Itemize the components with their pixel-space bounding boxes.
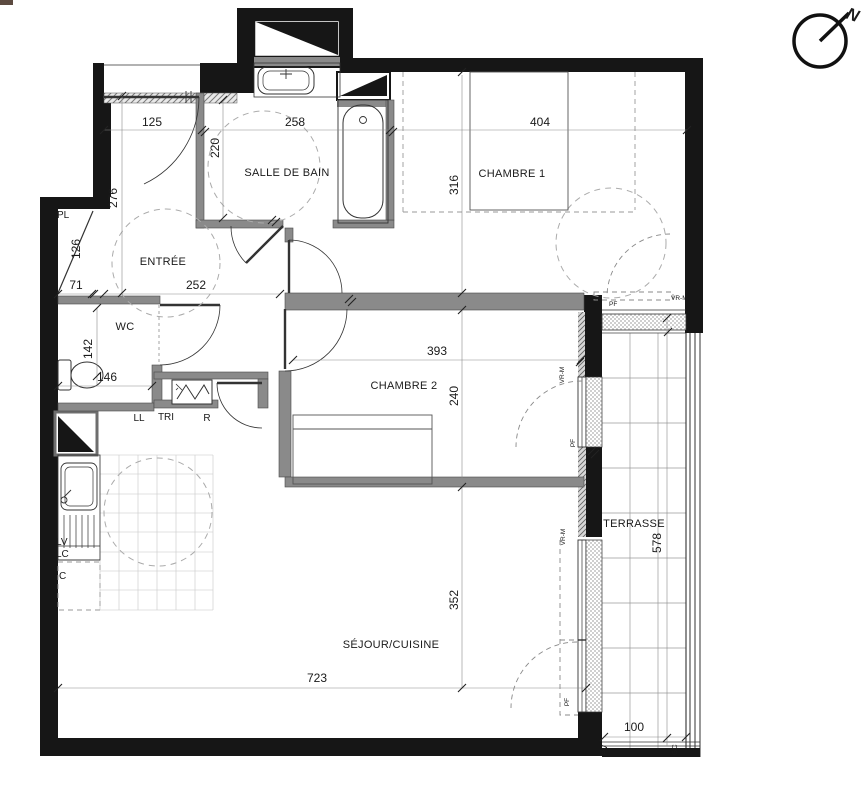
bathtub	[338, 100, 388, 223]
washbasin	[254, 63, 340, 97]
dim-bathroom-width: 258	[285, 115, 305, 129]
living-window	[578, 540, 602, 712]
wc-door	[160, 305, 220, 365]
label-closet: PL	[57, 210, 70, 221]
dim-entry-width: 252	[186, 278, 206, 292]
dim-closet-diagonal: 126	[69, 239, 83, 259]
dim-terrace-depth: 578	[650, 533, 664, 553]
duct-shaft-icon	[254, 20, 340, 66]
dim-bedroom2-depth: 240	[447, 386, 461, 406]
bedroom2-window	[578, 377, 602, 447]
bedroom2-door	[285, 309, 347, 371]
terrace-floor	[602, 316, 686, 757]
label-bathroom: SALLE DE BAIN	[244, 167, 329, 179]
label-vr-bedroom1: VR-M	[671, 295, 688, 302]
dim-living-width: 723	[307, 671, 327, 685]
dim-entry-left: 276	[106, 188, 120, 208]
dim-wc-depth: 142	[81, 339, 95, 359]
partition-walls	[58, 93, 584, 487]
living-door	[217, 383, 262, 428]
water-heater-box	[172, 380, 212, 404]
dim-terrace-width: 100	[624, 720, 644, 734]
dim-wc-width: 146	[97, 370, 117, 384]
duct-shaft-small-icon	[337, 72, 390, 107]
floor-plan-page: 125 258 404 220 276 126 71 252 316 142 1…	[0, 0, 864, 800]
north-compass-icon: N	[794, 4, 862, 67]
floor-plan: 125 258 404 220 276 126 71 252 316 142 1…	[0, 0, 864, 800]
label-cooker: C	[59, 571, 66, 582]
dim-bathroom-depth: 220	[208, 138, 222, 158]
label-pf-living: PF	[564, 698, 571, 706]
label-entry: ENTRÉE	[140, 255, 186, 268]
label-vr-living: VR-M	[560, 529, 567, 546]
bedroom1-window	[602, 310, 686, 330]
dim-bedroom1-depth: 316	[447, 175, 461, 195]
label-fridge: R	[203, 413, 210, 424]
dim-entry-door: 125	[142, 115, 162, 129]
bathroom-door	[231, 226, 283, 263]
label-dishwasher: LV	[56, 537, 68, 548]
label-bedroom2: CHAMBRE 2	[371, 380, 438, 392]
dim-bedroom1-width: 404	[530, 115, 550, 129]
dim-living-depth: 352	[447, 590, 461, 610]
dim-bedroom2-width: 393	[427, 344, 447, 358]
kitchen-tiles	[100, 455, 213, 610]
label-lc: LC	[56, 549, 69, 560]
label-pf-bedroom2: PF	[570, 439, 577, 447]
bed-bedroom1	[470, 72, 568, 210]
bed-bedroom2	[293, 415, 432, 484]
label-vr-bedroom2: VR-M	[559, 367, 566, 384]
dim-closet-width: 71	[69, 278, 83, 292]
label-pf-bedroom1: PF	[609, 301, 617, 308]
kitchen-shaft-icon	[55, 412, 97, 455]
label-pv: PV	[600, 745, 609, 755]
compass-north-label: N	[844, 4, 863, 26]
label-living: SÉJOUR/CUISINE	[343, 638, 440, 651]
dashed-lines	[58, 72, 635, 610]
scan-smudge	[0, 0, 13, 5]
label-bedroom1: CHAMBRE 1	[479, 168, 546, 180]
label-gc: GC	[670, 744, 679, 756]
label-terrace: TERRASSE	[603, 518, 665, 530]
label-sorting: TRI	[158, 412, 174, 423]
label-wc: WC	[116, 321, 135, 333]
bedroom1-door	[289, 240, 342, 293]
label-washing-machine: LL	[133, 413, 145, 424]
